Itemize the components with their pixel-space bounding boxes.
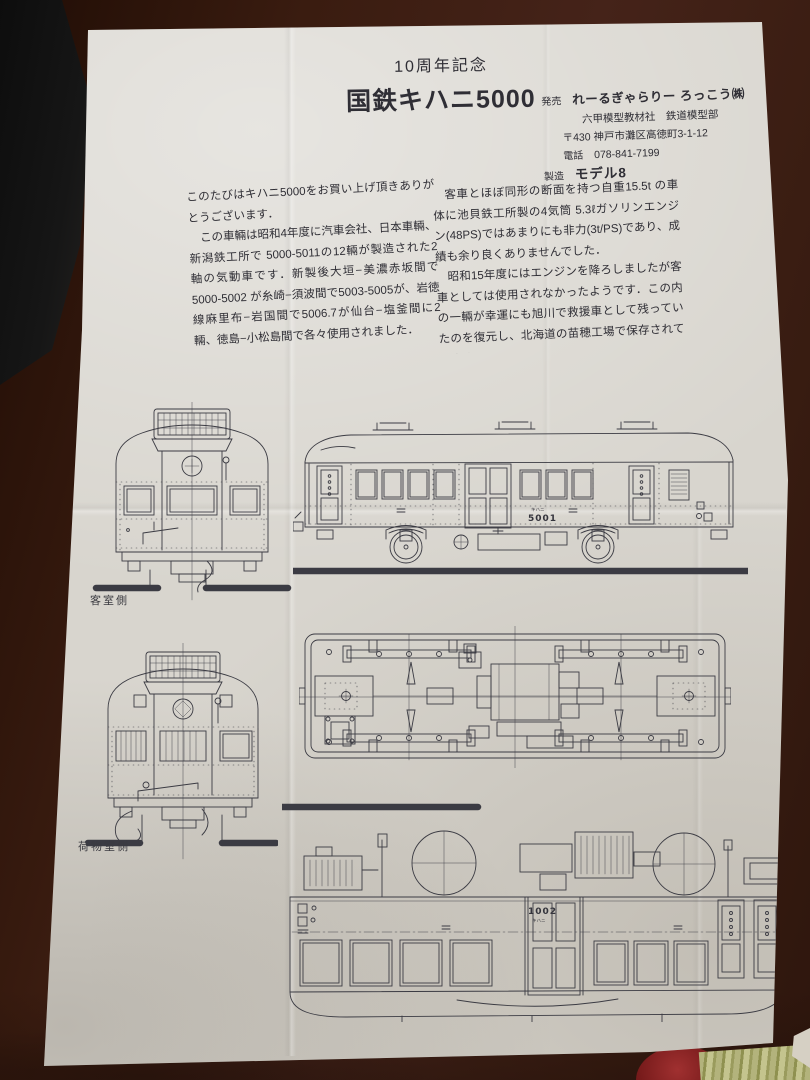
tel-label: 電話	[563, 151, 583, 163]
right-paragraph-1: 客車とほぼ同形の断面を持つ自重15.5t の車体に池貝鉄工所製の4気筒 5.3ℓ…	[432, 175, 681, 268]
front-view-luggage-side-drawing	[86, 643, 278, 861]
right-paragraph-2: 昭和15年度にはエンジンを降ろしましたが客車としては使用されなかったようです．こ…	[436, 257, 686, 354]
anniversary-heading: 10周年記念	[376, 51, 506, 77]
body-text-right-column: 客車とほぼ同形の断面を持つ自重15.5t の車体に池貝鉄工所製の4気筒 5.3ℓ…	[432, 175, 685, 354]
leaflet-paper: 10周年記念 国鉄キハニ5000 発売 れーるぎゃらりー ろっこう㈱ 六甲模型教…	[0, 0, 810, 1080]
label-luggage-side: 荷物室側	[78, 838, 130, 854]
plan-number: 1002	[528, 907, 557, 917]
underframe-plan-drawing	[299, 626, 731, 768]
front-view-passenger-side-drawing	[92, 402, 292, 602]
label-passenger-side: 客室側	[90, 592, 129, 608]
side-number: 5001	[528, 514, 557, 524]
side-number-prefix: キハニ	[531, 507, 545, 513]
body-text-left-column: このたびはキハニ5000をお買い上げ頂きありがとうございます． この車輛は昭和4…	[186, 175, 442, 356]
roof-plan-and-opposite-side-drawing: 1002 キハニ	[282, 800, 796, 1022]
publisher-block: 発売 れーるぎゃらりー ろっこう㈱ 六甲模型教材社 鉄道模型部 〒430 神戸市…	[541, 83, 794, 187]
left-paragraph-2: この車輛は昭和4年度に汽車会社、日本車輛、新潟鉄工所で 5000-5011の12…	[188, 216, 442, 352]
side-elevation-drawing: キハニ 5001	[293, 406, 748, 586]
tel-number: 078-841-7199	[594, 147, 660, 161]
sale-label: 発売	[541, 96, 561, 108]
sale-name: れーるぎゃらりー ろっこう㈱	[572, 87, 745, 107]
plan-number-prefix: キハニ	[532, 918, 546, 924]
photo-of-model-train-leaflet: 10周年記念 国鉄キハニ5000 発売 れーるぎゃらりー ろっこう㈱ 六甲模型教…	[0, 0, 810, 1080]
